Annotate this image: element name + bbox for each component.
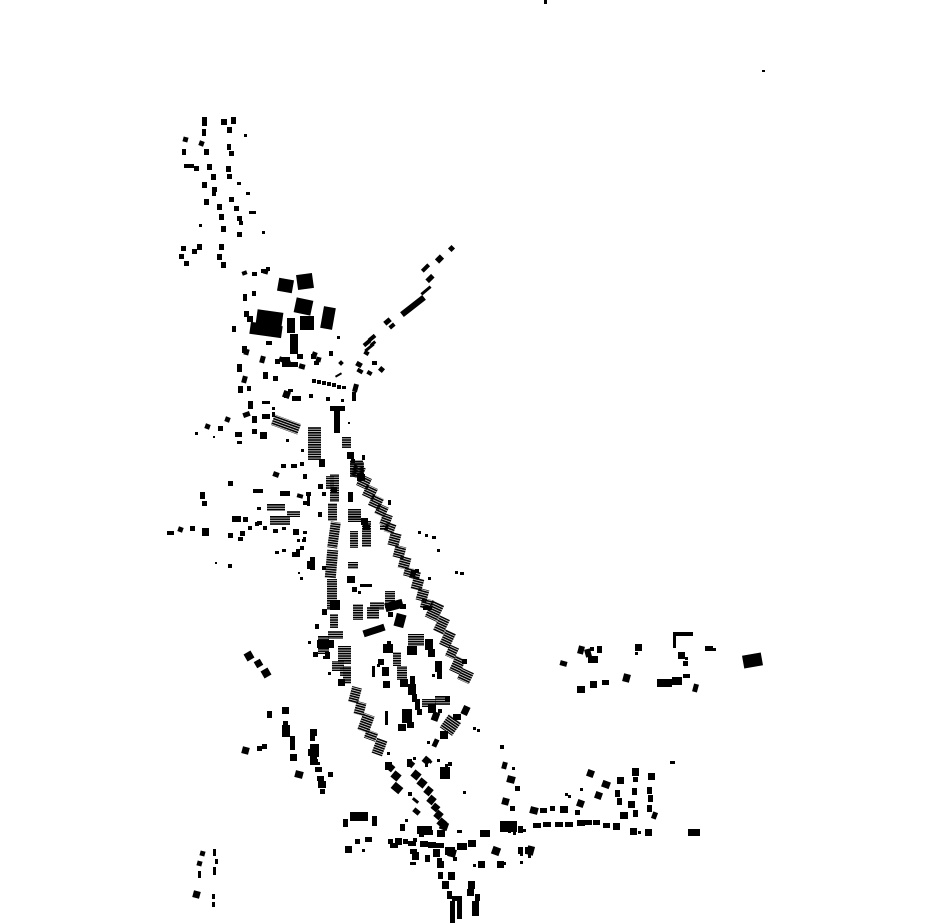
building-footprint xyxy=(438,872,443,879)
building-footprint xyxy=(318,484,323,489)
building-footprint xyxy=(232,326,236,332)
building-footprint xyxy=(194,166,199,171)
building-footprint xyxy=(633,777,638,782)
building-footprint xyxy=(432,674,435,677)
building-footprint xyxy=(413,757,416,760)
building-footprint xyxy=(200,492,205,499)
building-footprint xyxy=(238,386,243,393)
building-footprint xyxy=(453,857,457,861)
building-footprint xyxy=(472,901,479,916)
building-footprint xyxy=(252,416,257,423)
building-footprint xyxy=(330,406,345,411)
building-footprint xyxy=(218,426,223,431)
building-footprint xyxy=(328,772,333,777)
building-footprint xyxy=(318,781,326,788)
building-footprint xyxy=(330,614,338,628)
building-footprint xyxy=(348,562,358,569)
building-footprint xyxy=(231,117,236,124)
building-footprint xyxy=(565,822,573,827)
building-footprint xyxy=(450,901,455,923)
building-footprint xyxy=(340,668,351,676)
building-footprint xyxy=(262,401,270,404)
building-footprint xyxy=(213,436,215,438)
building-footprint xyxy=(322,566,326,570)
building-footprint xyxy=(418,531,421,534)
building-footprint xyxy=(204,149,209,155)
building-footprint xyxy=(448,762,452,766)
building-footprint xyxy=(393,652,401,666)
building-footprint xyxy=(387,752,390,755)
building-footprint xyxy=(332,383,336,387)
building-footprint xyxy=(518,826,523,833)
building-footprint xyxy=(388,612,393,617)
building-footprint xyxy=(257,746,262,751)
building-footprint xyxy=(219,244,224,250)
building-footprint xyxy=(237,232,242,237)
building-footprint xyxy=(227,127,232,133)
building-footprint xyxy=(244,134,247,137)
building-footprint xyxy=(590,647,594,651)
building-footprint xyxy=(217,254,222,260)
building-footprint xyxy=(314,361,319,365)
building-footprint xyxy=(688,829,700,836)
building-footprint xyxy=(523,829,526,832)
building-footprint xyxy=(513,832,516,835)
building-footprint xyxy=(198,871,201,878)
building-footprint xyxy=(425,639,433,650)
building-footprint xyxy=(202,182,207,188)
building-footprint xyxy=(334,411,340,433)
building-footprint xyxy=(428,649,435,657)
building-footprint xyxy=(252,272,257,276)
building-footprint xyxy=(428,842,436,848)
building-footprint xyxy=(273,529,278,533)
building-footprint xyxy=(184,261,189,266)
building-footprint xyxy=(417,709,422,715)
building-footprint xyxy=(683,661,688,666)
building-footprint xyxy=(436,843,444,848)
building-footprint xyxy=(633,810,638,817)
building-footprint xyxy=(237,441,242,444)
building-footprint xyxy=(328,503,337,521)
building-footprint xyxy=(310,729,317,736)
building-footprint xyxy=(212,191,216,196)
building-footprint xyxy=(462,659,467,664)
building-footprint xyxy=(297,539,300,542)
building-footprint xyxy=(468,840,476,847)
building-footprint xyxy=(372,816,377,826)
building-footprint xyxy=(638,831,641,834)
building-footprint xyxy=(317,776,324,781)
building-footprint xyxy=(280,491,290,496)
building-footprint xyxy=(240,531,245,536)
building-footprint xyxy=(296,273,314,290)
building-footprint xyxy=(362,849,365,852)
building-footprint xyxy=(473,864,476,867)
building-footprint xyxy=(319,459,325,467)
building-footprint xyxy=(290,362,298,367)
building-footprint xyxy=(207,164,212,170)
building-footprint xyxy=(520,861,523,864)
building-footprint xyxy=(620,812,628,819)
building-footprint xyxy=(261,269,266,273)
building-footprint xyxy=(437,759,440,762)
building-footprint xyxy=(315,767,322,772)
building-footprint xyxy=(199,224,202,227)
building-footprint xyxy=(263,372,268,379)
building-footprint xyxy=(685,657,688,660)
building-footprint xyxy=(182,149,186,155)
building-footprint xyxy=(512,767,515,770)
building-footprint xyxy=(543,822,551,827)
building-footprint xyxy=(239,221,243,225)
building-footprint xyxy=(452,896,462,901)
building-footprint xyxy=(249,211,256,214)
building-footprint xyxy=(328,631,343,639)
building-footprint xyxy=(211,174,216,180)
building-footprint xyxy=(290,736,295,750)
building-footprint xyxy=(247,386,251,391)
building-footprint xyxy=(301,449,304,452)
building-footprint xyxy=(272,407,275,410)
building-footprint xyxy=(237,216,242,221)
building-footprint xyxy=(243,517,248,522)
building-footprint xyxy=(286,439,289,442)
building-footprint xyxy=(410,862,416,865)
building-footprint xyxy=(425,534,428,537)
building-footprint xyxy=(303,531,307,534)
building-footprint xyxy=(400,679,408,687)
building-footprint xyxy=(358,591,361,594)
building-footprint xyxy=(385,711,388,725)
building-footprint xyxy=(647,787,652,794)
building-footprint xyxy=(433,849,440,857)
building-footprint xyxy=(320,789,325,794)
building-footprint xyxy=(445,696,450,701)
building-footprint xyxy=(670,761,675,764)
building-footprint xyxy=(202,129,206,136)
building-footprint xyxy=(648,795,653,802)
building-footprint xyxy=(345,846,352,853)
building-footprint xyxy=(192,249,197,254)
building-footprint xyxy=(457,843,467,850)
building-footprint xyxy=(632,788,637,795)
building-footprint xyxy=(282,707,289,714)
building-footprint xyxy=(382,667,389,676)
building-footprint xyxy=(673,636,676,648)
building-footprint xyxy=(602,680,609,685)
building-footprint xyxy=(588,656,598,663)
building-footprint xyxy=(326,397,330,401)
building-footprint xyxy=(617,777,624,784)
building-footprint xyxy=(341,399,344,402)
building-footprint xyxy=(435,661,442,672)
building-footprint xyxy=(260,432,267,439)
building-footprint xyxy=(229,197,234,202)
building-footprint xyxy=(630,828,637,835)
building-footprint xyxy=(300,546,304,550)
building-footprint xyxy=(705,646,713,651)
building-footprint xyxy=(221,226,226,232)
building-footprint xyxy=(267,711,272,718)
building-footprint xyxy=(528,855,531,858)
building-footprint xyxy=(575,810,580,815)
building-footprint xyxy=(308,749,315,756)
building-footprint xyxy=(212,894,215,899)
map-page xyxy=(0,0,930,924)
building-footprint xyxy=(248,526,252,530)
building-footprint xyxy=(423,606,432,610)
building-footprint xyxy=(291,464,297,468)
building-footprint xyxy=(577,820,585,826)
building-footprint xyxy=(383,644,393,653)
building-footprint xyxy=(590,681,597,688)
building-footprint xyxy=(237,182,241,185)
building-footprint xyxy=(577,686,585,693)
building-footprint xyxy=(242,346,247,353)
building-footprint xyxy=(657,679,672,687)
building-footprint xyxy=(221,262,226,268)
building-footprint xyxy=(397,666,407,680)
building-footprint xyxy=(248,401,253,409)
building-footprint xyxy=(282,549,286,552)
building-footprint xyxy=(296,549,300,552)
building-footprint xyxy=(197,244,202,250)
building-footprint xyxy=(565,793,568,796)
building-footprint xyxy=(337,385,341,389)
building-footprint xyxy=(445,764,448,767)
building-footprint xyxy=(645,829,652,836)
building-footprint xyxy=(500,821,517,832)
building-footprint xyxy=(288,389,293,392)
building-footprint xyxy=(613,823,620,830)
building-footprint xyxy=(500,745,504,749)
building-footprint xyxy=(445,847,455,855)
building-footprint xyxy=(325,652,330,659)
building-footprint xyxy=(229,151,234,156)
building-footprint xyxy=(213,867,216,875)
building-footprint xyxy=(277,278,294,293)
building-footprint xyxy=(281,464,286,468)
building-footprint xyxy=(303,537,306,540)
building-footprint xyxy=(348,422,350,424)
building-footprint xyxy=(360,584,372,587)
building-footprint xyxy=(226,166,231,172)
building-footprint xyxy=(290,754,297,761)
building-footprint xyxy=(475,894,480,901)
building-footprint xyxy=(322,609,327,615)
building-footprint xyxy=(440,767,450,779)
building-footprint xyxy=(615,790,620,797)
building-footprint xyxy=(300,316,314,330)
building-footprint xyxy=(372,666,375,677)
building-footprint xyxy=(342,386,346,389)
building-footprint xyxy=(468,881,475,889)
building-footprint xyxy=(427,741,430,744)
building-footprint xyxy=(329,351,333,356)
building-footprint xyxy=(227,174,232,179)
building-footprint xyxy=(672,677,682,685)
building-footprint xyxy=(555,822,563,827)
building-footprint xyxy=(237,364,242,372)
building-footprint xyxy=(437,671,442,679)
building-footprint xyxy=(252,291,256,296)
building-footprint xyxy=(275,359,280,364)
building-footprint xyxy=(293,529,299,535)
building-footprint xyxy=(762,70,765,72)
building-footprint xyxy=(312,379,316,383)
building-footprint xyxy=(387,641,391,645)
building-footprint xyxy=(181,246,186,251)
building-footprint xyxy=(678,652,685,659)
building-footprint xyxy=(317,640,334,648)
building-footprint xyxy=(337,336,340,339)
building-footprint xyxy=(270,516,290,525)
building-footprint xyxy=(202,528,209,536)
building-footprint xyxy=(167,531,174,535)
building-footprint xyxy=(457,901,462,919)
building-footprint xyxy=(287,318,295,333)
building-footprint xyxy=(217,204,222,210)
building-footprint xyxy=(253,489,263,493)
building-footprint xyxy=(338,679,345,686)
building-footprint xyxy=(362,455,365,460)
building-footprint xyxy=(228,564,232,568)
building-footprint xyxy=(195,432,198,435)
building-footprint xyxy=(380,525,388,530)
building-footprint xyxy=(243,294,247,301)
building-footprint xyxy=(298,572,300,574)
building-footprint xyxy=(238,537,243,541)
building-footprint xyxy=(290,334,298,354)
building-footprint xyxy=(352,392,356,401)
building-footprint xyxy=(273,376,278,381)
building-footprint xyxy=(540,808,547,813)
building-footprint xyxy=(307,561,310,564)
building-footprint xyxy=(407,646,417,655)
building-footprint xyxy=(432,536,436,539)
building-footprint xyxy=(673,632,693,636)
building-footprint xyxy=(190,526,195,531)
building-footprint xyxy=(246,192,250,195)
building-footprint xyxy=(383,681,390,688)
building-footprint xyxy=(227,144,231,150)
building-footprint xyxy=(292,552,300,557)
building-footprint xyxy=(202,501,207,506)
building-footprint xyxy=(683,674,690,678)
building-footprint xyxy=(713,648,716,651)
building-footprint xyxy=(533,823,541,828)
figure-ground-map xyxy=(0,0,930,924)
building-footprint xyxy=(467,889,474,896)
building-footprint xyxy=(255,522,259,526)
building-footprint xyxy=(303,474,307,479)
building-footprint xyxy=(405,819,408,822)
building-footprint xyxy=(322,381,326,385)
map-background xyxy=(0,0,930,924)
building-footprint xyxy=(415,569,419,573)
building-footprint xyxy=(585,820,592,825)
building-footprint xyxy=(515,786,520,791)
building-footprint xyxy=(448,872,455,880)
building-footprint xyxy=(402,709,412,723)
building-footprint xyxy=(266,267,270,271)
building-footprint xyxy=(234,206,239,211)
building-footprint xyxy=(262,414,270,419)
building-footprint xyxy=(367,607,379,619)
building-footprint xyxy=(365,837,372,842)
building-footprint xyxy=(408,684,416,695)
building-footprint xyxy=(420,841,428,847)
building-footprint xyxy=(282,357,290,367)
building-footprint xyxy=(372,361,377,365)
building-footprint xyxy=(247,316,253,322)
building-footprint xyxy=(221,119,227,125)
building-footprint xyxy=(330,600,340,610)
building-footprint xyxy=(307,492,310,506)
building-footprint xyxy=(257,507,261,510)
building-footprint xyxy=(353,604,363,620)
building-footprint xyxy=(342,437,351,448)
building-footprint xyxy=(403,839,408,844)
building-footprint xyxy=(297,354,303,359)
building-footprint xyxy=(228,481,233,486)
building-footprint xyxy=(628,801,635,808)
building-footprint xyxy=(327,382,331,386)
building-footprint xyxy=(407,722,414,728)
building-footprint xyxy=(617,798,622,805)
building-footprint xyxy=(390,843,398,848)
building-footprint xyxy=(348,513,361,520)
building-footprint xyxy=(455,571,458,574)
building-footprint xyxy=(350,531,358,548)
building-footprint xyxy=(410,676,415,685)
building-footprint xyxy=(593,820,600,825)
building-footprint xyxy=(437,858,442,865)
building-footprint xyxy=(348,492,353,502)
building-footprint xyxy=(263,526,267,530)
building-footprint xyxy=(647,805,652,812)
building-footprint xyxy=(477,729,480,732)
building-footprint xyxy=(179,254,184,259)
building-footprint xyxy=(560,806,568,813)
building-footprint xyxy=(262,231,265,234)
building-footprint xyxy=(438,709,442,713)
building-footprint xyxy=(635,644,642,651)
building-footprint xyxy=(423,830,433,835)
building-footprint xyxy=(307,564,311,569)
building-footprint xyxy=(361,518,368,525)
building-footprint xyxy=(442,881,449,889)
building-footprint xyxy=(228,533,233,538)
building-footprint xyxy=(377,664,380,667)
building-footprint xyxy=(413,838,417,842)
building-footprint xyxy=(510,806,515,811)
building-footprint xyxy=(308,641,311,644)
building-footprint xyxy=(309,394,313,398)
building-footprint xyxy=(635,652,638,655)
building-footprint xyxy=(347,576,355,583)
building-footprint xyxy=(480,830,490,837)
building-footprint xyxy=(272,412,275,417)
building-footprint xyxy=(235,432,242,437)
building-footprint xyxy=(212,902,215,907)
building-footprint xyxy=(363,525,370,530)
building-footprint xyxy=(408,634,424,646)
building-footprint xyxy=(313,759,318,764)
building-footprint xyxy=(648,773,655,780)
building-footprint xyxy=(232,516,241,522)
